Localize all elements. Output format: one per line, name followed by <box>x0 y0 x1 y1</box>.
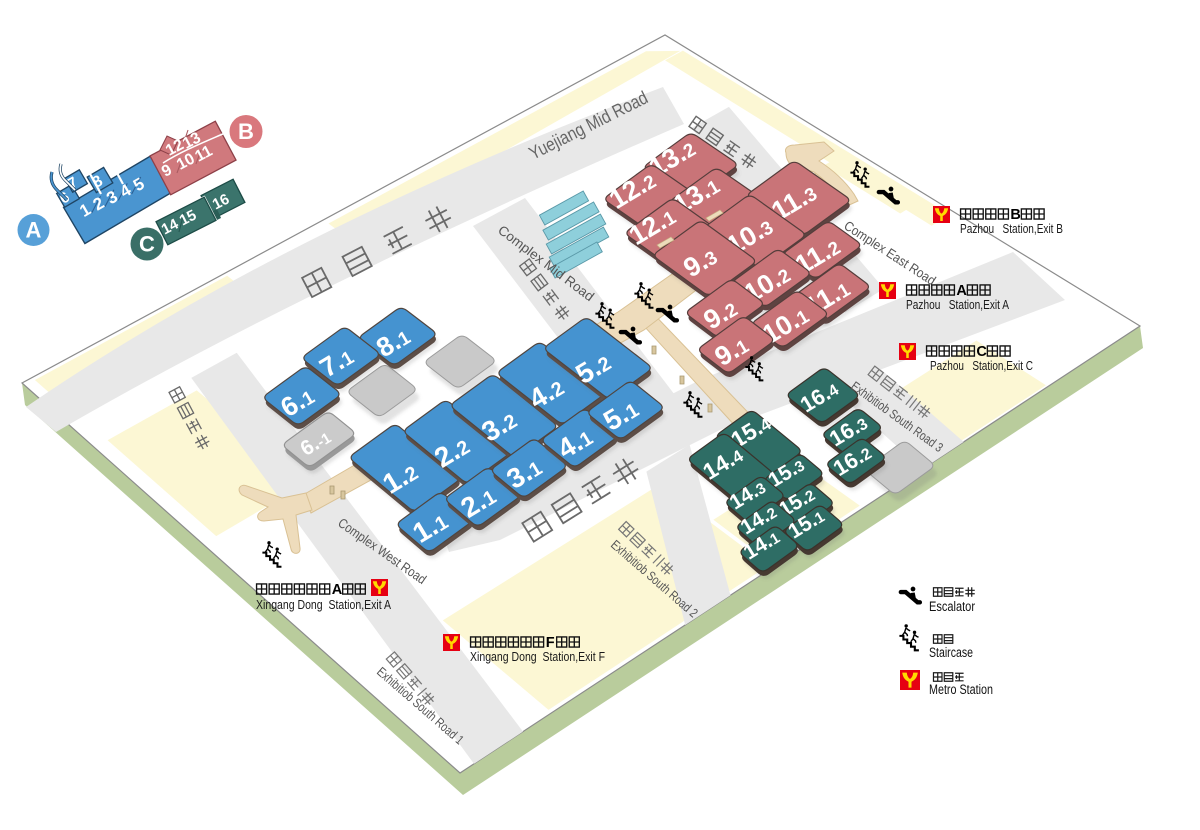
svg-text:B: B <box>238 119 254 144</box>
svg-text:Staircase: Staircase <box>929 645 973 660</box>
svg-text:Pazhou Station,Exit B: Pazhou Station,Exit B <box>960 222 1063 236</box>
svg-text:C: C <box>976 344 987 360</box>
svg-text:Xingang Dong Station,Exit F: Xingang Dong Station,Exit F <box>470 650 605 664</box>
svg-text:Metro Station: Metro Station <box>929 682 993 697</box>
svg-text:F: F <box>546 635 555 651</box>
svg-text:A: A <box>26 218 42 243</box>
svg-text:C: C <box>139 232 155 257</box>
svg-text:B: B <box>1010 207 1020 223</box>
svg-text:A: A <box>332 582 343 598</box>
svg-text:Pazhou Station,Exit A: Pazhou Station,Exit A <box>906 298 1010 312</box>
svg-text:Pazhou Station,Exit C: Pazhou Station,Exit C <box>930 359 1033 373</box>
svg-text:Xingang Dong Station,Exit A: Xingang Dong Station,Exit A <box>256 598 392 612</box>
svg-text:Escalator: Escalator <box>929 599 975 614</box>
svg-text:A: A <box>956 283 967 299</box>
